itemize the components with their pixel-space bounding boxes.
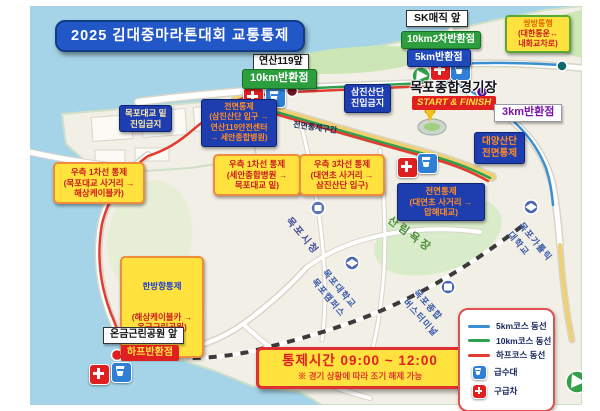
one-way-title: 한방향통제	[124, 281, 200, 292]
right-lane1-mid-box: 우측 1차선 통제 (세안종합병원 → 목포대교 밑)	[213, 154, 301, 196]
bridge-no-entry-box: 목포대교 밑 진입금지	[119, 105, 172, 132]
university-icon	[345, 256, 359, 270]
legend-item-water: 급수대	[468, 365, 545, 380]
first-aid-icon	[89, 364, 110, 385]
right-lane3-box: 우측 3차선 통제 (대연초 사거리 → 삼진산단 입구)	[299, 154, 385, 196]
first-aid-icon	[472, 384, 487, 399]
full-control-west-box: 전면통제 (삼진산단 입구 → 연산119안전센터 → 세안종합병원)	[201, 99, 277, 147]
map-title: 2025 김대중마라톤대회 교통통제	[55, 20, 305, 52]
10km-second-turn-label: 10km2차반환점	[401, 31, 481, 49]
10km-line-swatch	[468, 339, 490, 342]
water-station-icon	[111, 362, 132, 383]
legend: 5km코스 동선 10km코스 동선 하프코스 동선 급수대 구급차	[458, 308, 555, 411]
five-km-turn-dot	[557, 61, 567, 71]
legend-item-5km: 5km코스 동선	[468, 321, 545, 332]
full-control-east-box: 전면통제 (대연초 사거리 → 압해대교)	[397, 183, 485, 221]
water-station-icon	[417, 153, 438, 174]
catholic-university-icon	[524, 200, 538, 214]
control-time-title: 통제시간 09:00 ~ 12:00	[259, 353, 461, 370]
legend-label: 10km코스 동선	[496, 336, 551, 347]
sk-magic-label: SK매직 앞	[406, 10, 468, 27]
ongeum-park-label: 온금근린공원 앞	[103, 327, 184, 344]
water-station-icon	[472, 365, 487, 380]
legend-label: 5km코스 동선	[496, 321, 547, 332]
first-aid-icon	[397, 157, 418, 178]
control-time-note: ※ 경기 상황에 따라 조기 해제 가능	[259, 371, 461, 382]
daeyang-full-control-box: 대양산단 전면통제	[474, 132, 525, 164]
half-turn-label: 하프반환점	[121, 345, 179, 361]
legend-label: 하프코스 동선	[496, 350, 545, 361]
legend-item-10km: 10km코스 동선	[468, 336, 545, 347]
traffic-control-map: 목포시청 산림욕장 목포대학교 목포캠퍼스 목포종합 버스터미널 목포역 목포가…	[0, 0, 600, 411]
half-line-swatch	[468, 354, 490, 357]
right-lane1-west-box: 우측 1차선 통제 (목포대교 사거리 → 해상케이블카)	[53, 162, 145, 204]
5km-turn-label: 5km반환점	[407, 49, 471, 67]
stadium-label: 목포종합경기장	[410, 80, 497, 97]
two-way-traffic-box: 쌍방통행 (대한통운↔ 내화교차로)	[505, 15, 571, 53]
legend-label: 급수대	[494, 367, 517, 378]
start-finish-label: START & FINISH	[412, 96, 496, 110]
cityhall-icon	[311, 201, 325, 215]
3km-turn-label: 3km반환점	[494, 104, 562, 122]
two-way-body: (대한통운↔ 내화교차로)	[509, 29, 567, 49]
legend-label: 구급차	[494, 386, 517, 397]
legend-item-ambulance: 구급차	[468, 384, 545, 399]
10km-turn-label: 10km반환점	[242, 69, 317, 89]
two-way-title: 쌍방통행	[509, 19, 567, 29]
samjin-no-entry-box: 삼진산단 진입금지	[344, 84, 391, 113]
5km-line-swatch	[468, 325, 490, 328]
control-time-box: 통제시간 09:00 ~ 12:00 ※ 경기 상황에 따라 조기 해제 가능	[256, 347, 464, 389]
legend-item-half: 하프코스 동선	[468, 350, 545, 361]
bus-terminal-icon	[441, 280, 455, 294]
